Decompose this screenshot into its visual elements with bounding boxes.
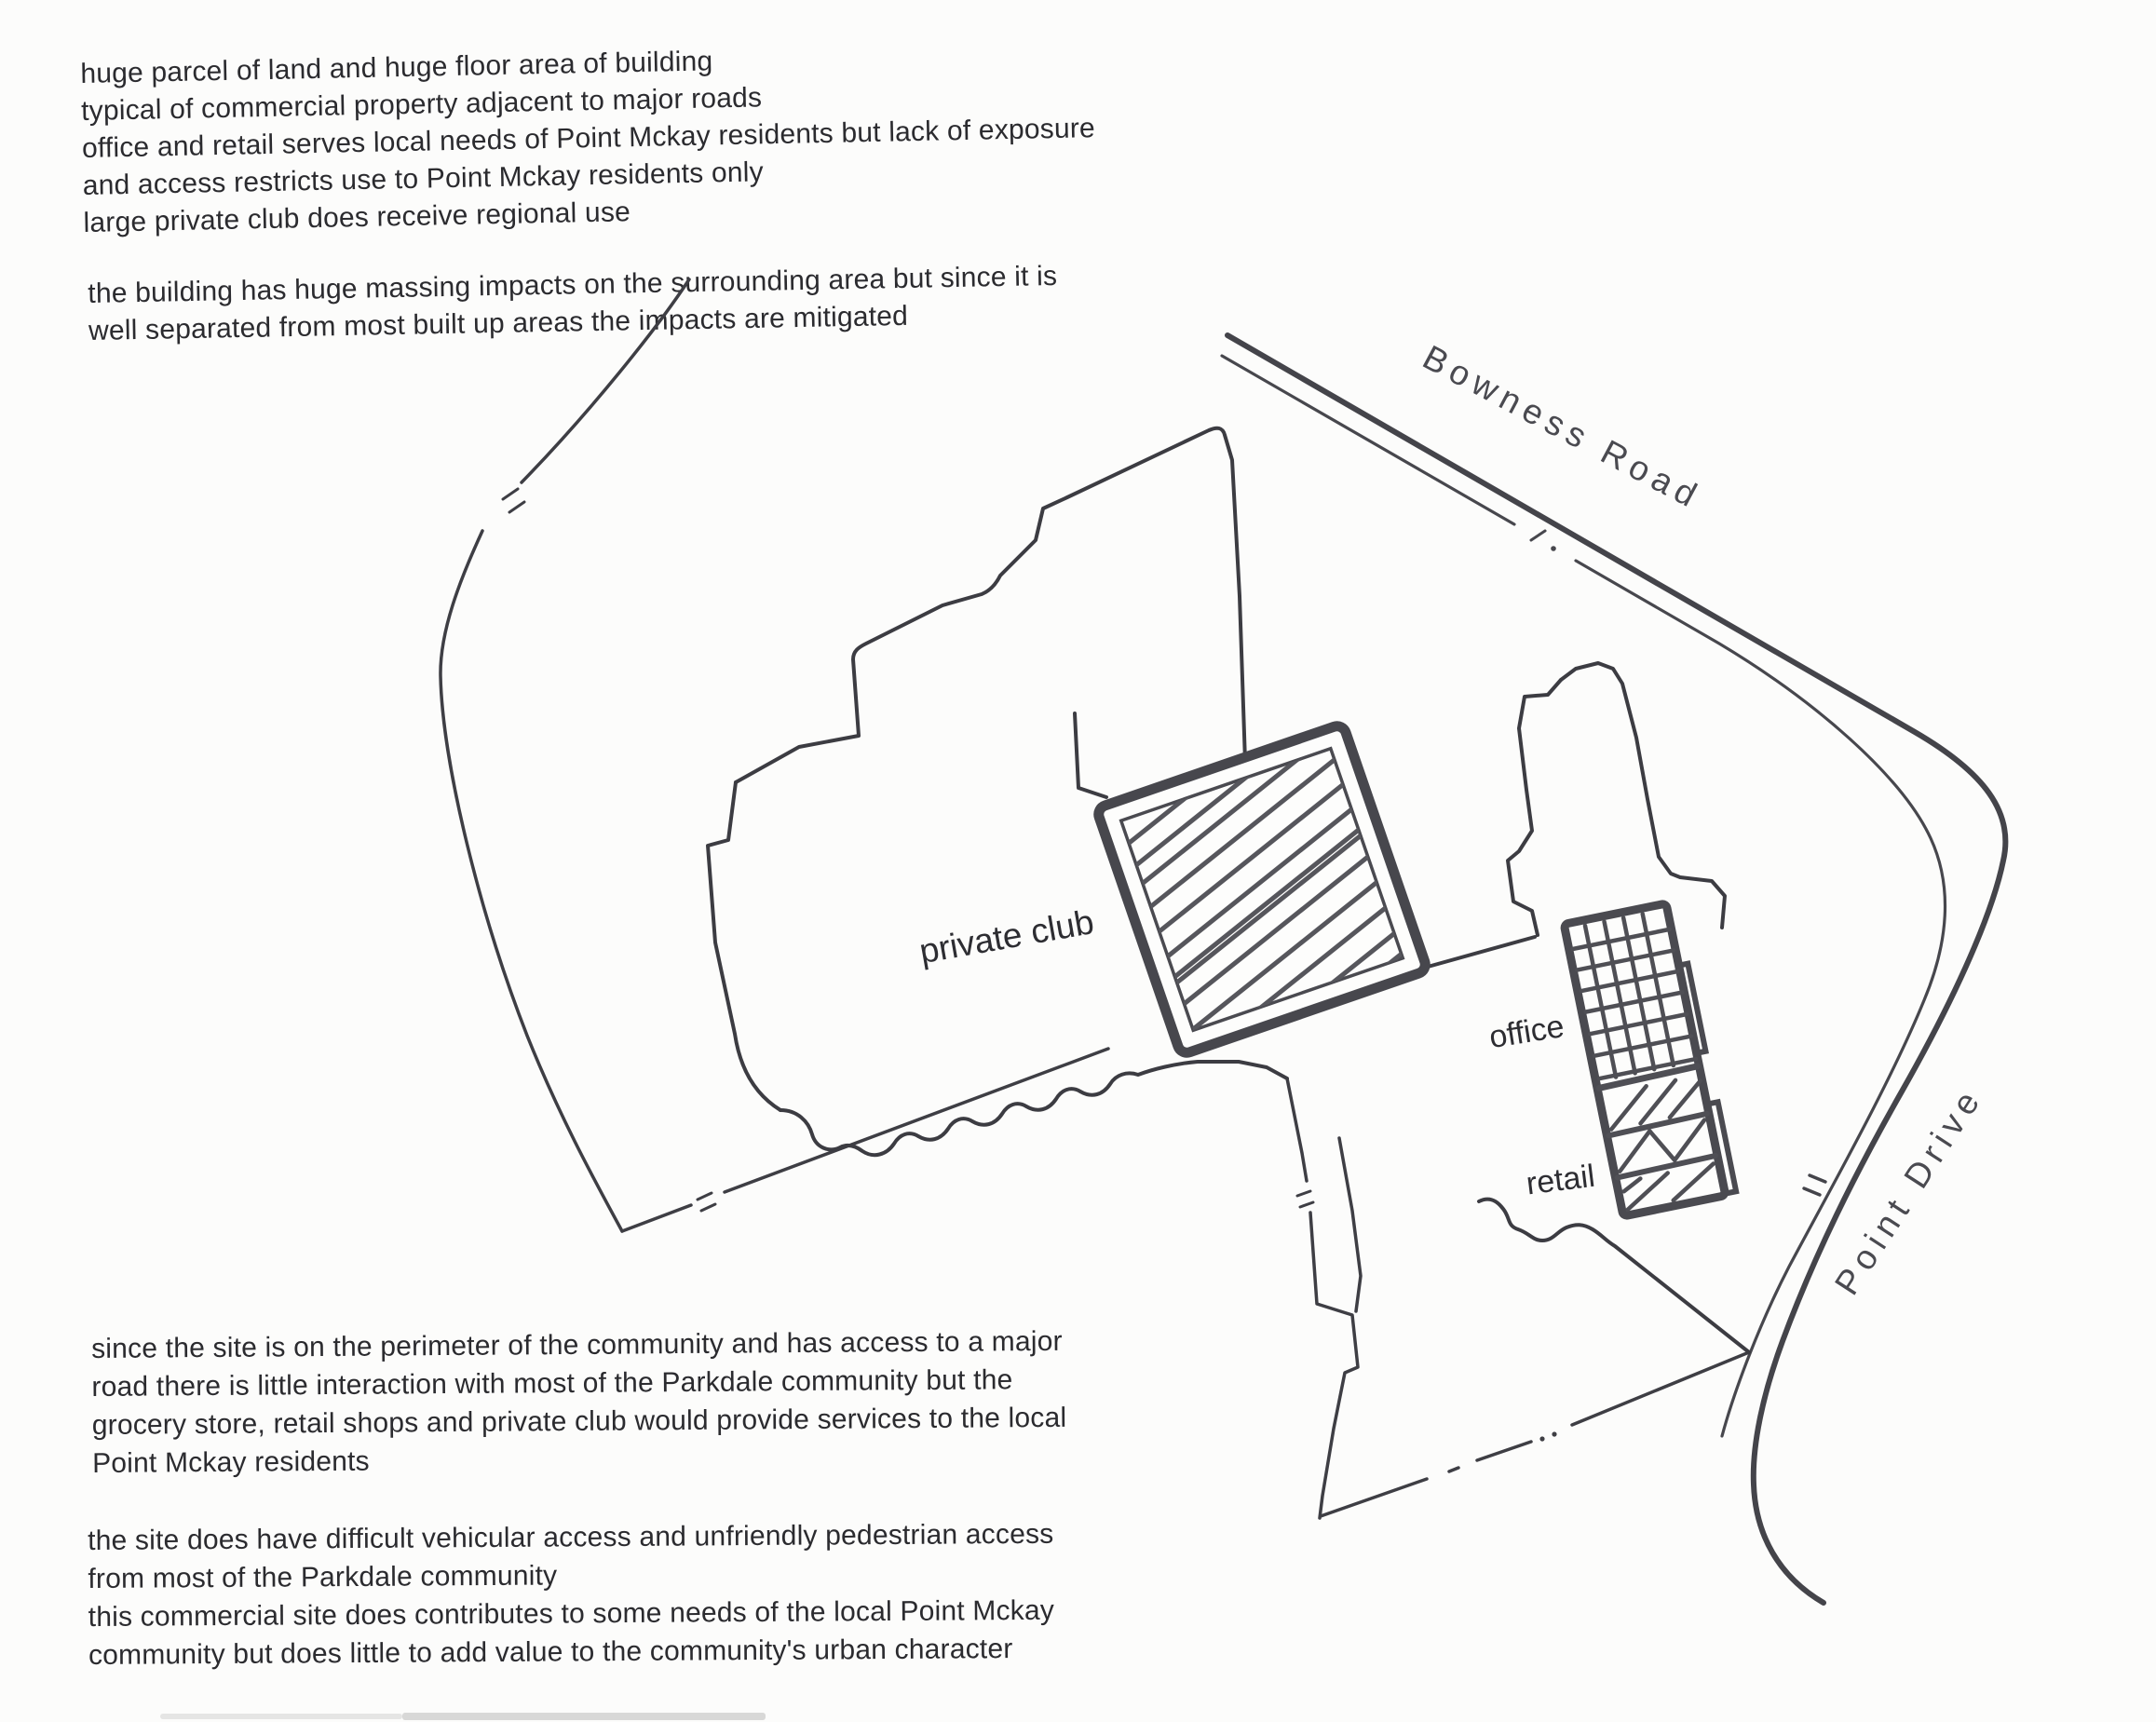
parcel-south-boundary bbox=[725, 1049, 1108, 1192]
scanned-page: huge parcel of land and huge floor area … bbox=[0, 0, 2156, 1722]
private-club-label: private club bbox=[916, 902, 1096, 970]
parcel-west-boundary bbox=[522, 279, 689, 482]
office-arm-outline bbox=[1561, 663, 1725, 928]
building-outline-left bbox=[708, 782, 780, 1110]
parcel-strip-edge bbox=[1339, 1138, 1361, 1311]
building-connector-line bbox=[1421, 937, 1535, 969]
scan-artifact bbox=[402, 1713, 766, 1720]
building-outline-top bbox=[736, 428, 1245, 782]
scan-artifact bbox=[160, 1714, 402, 1719]
parcel-west-boundary bbox=[441, 531, 622, 1231]
private-club-building bbox=[1071, 551, 1453, 1246]
parcel-strip-edge bbox=[1287, 1078, 1307, 1181]
building-outline-southeast bbox=[1479, 1200, 1749, 1352]
building-outline-step bbox=[1075, 713, 1106, 797]
office-label: office bbox=[1486, 1009, 1566, 1055]
parcel-southeast-boundary bbox=[1321, 1352, 1749, 1516]
office-arm-outline bbox=[1508, 680, 1561, 935]
parcel-strip-edge bbox=[1310, 1213, 1358, 1518]
parcel-south-boundary bbox=[622, 1205, 691, 1231]
retail-label: retail bbox=[1525, 1159, 1597, 1202]
site-plan-drawing: Bowness Road Point Drive private club of… bbox=[0, 0, 2156, 1722]
bowness-road-label: Bowness Road bbox=[1417, 338, 1708, 517]
